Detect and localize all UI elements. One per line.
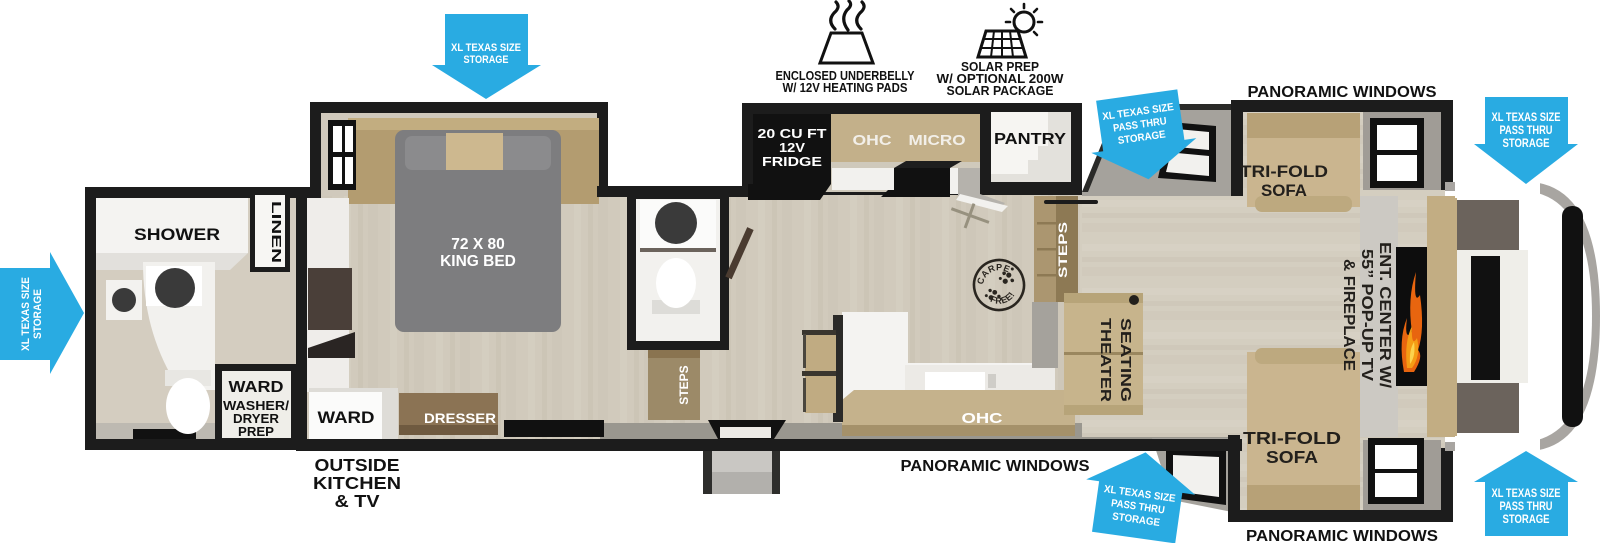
svg-text:DRYER: DRYER (233, 412, 279, 426)
svg-text:PANORAMIC WINDOWS: PANORAMIC WINDOWS (1248, 84, 1437, 101)
svg-text:KING BED: KING BED (440, 253, 516, 270)
svg-text:PANORAMIC WINDOWS: PANORAMIC WINDOWS (901, 458, 1090, 475)
svg-text:PASS THRU: PASS THRU (1500, 125, 1553, 137)
svg-text:SOFA: SOFA (1261, 181, 1307, 200)
svg-text:SEATING: SEATING (1117, 318, 1134, 402)
svg-text:STORAGE: STORAGE (464, 54, 509, 66)
svg-text:PASS THRU: PASS THRU (1500, 501, 1553, 513)
svg-text:OUTSIDE: OUTSIDE (315, 455, 400, 475)
svg-text:SOLAR PACKAGE: SOLAR PACKAGE (947, 83, 1054, 98)
svg-text:STORAGE: STORAGE (1503, 514, 1550, 526)
svg-text:FRIDGE: FRIDGE (762, 154, 822, 169)
svg-text:XL TEXAS SIZE: XL TEXAS SIZE (1492, 488, 1561, 500)
svg-text:& TV: & TV (335, 491, 380, 511)
svg-text:THEATER: THEATER (1097, 318, 1114, 402)
svg-text:STEPS: STEPS (1056, 222, 1070, 278)
svg-text:WARD: WARD (229, 379, 284, 396)
svg-text:XL TEXAS SIZE: XL TEXAS SIZE (451, 42, 521, 54)
svg-text:ENT. CENTER W/: ENT. CENTER W/ (1376, 242, 1393, 389)
svg-text:OHC: OHC (962, 410, 1003, 427)
svg-text:20 CU FT: 20 CU FT (758, 126, 827, 141)
svg-text:STEPS: STEPS (677, 365, 691, 404)
svg-text:SHOWER: SHOWER (134, 225, 220, 244)
svg-text:& FIREPLACE: & FIREPLACE (1340, 259, 1357, 371)
svg-text:STORAGE: STORAGE (1503, 138, 1550, 150)
svg-text:MICRO: MICRO (909, 132, 966, 149)
svg-text:XL TEXAS SIZE: XL TEXAS SIZE (1492, 112, 1561, 124)
svg-text:W/ 12V HEATING PADS: W/ 12V HEATING PADS (783, 80, 908, 95)
svg-text:DRESSER: DRESSER (424, 410, 496, 426)
svg-text:12V: 12V (779, 140, 805, 155)
svg-text:PANORAMIC WINDOWS: PANORAMIC WINDOWS (1246, 528, 1438, 543)
svg-text:OHC: OHC (853, 132, 892, 149)
svg-text:PREP: PREP (238, 425, 274, 439)
svg-text:TRI-FOLD: TRI-FOLD (1243, 428, 1341, 448)
svg-text:KITCHEN: KITCHEN (313, 473, 401, 493)
svg-text:STORAGE: STORAGE (32, 289, 44, 339)
svg-text:55” POP-UP TV: 55” POP-UP TV (1358, 249, 1375, 381)
svg-text:72 X 80: 72 X 80 (451, 236, 504, 253)
svg-text:XL TEXAS SIZE: XL TEXAS SIZE (20, 277, 32, 351)
svg-text:WARD: WARD (318, 408, 375, 427)
svg-text:WASHER/: WASHER/ (223, 399, 290, 413)
svg-text:LINEN: LINEN (269, 201, 284, 263)
svg-text:TRI-FOLD: TRI-FOLD (1240, 162, 1328, 181)
svg-text:SOFA: SOFA (1266, 447, 1318, 467)
svg-text:PANTRY: PANTRY (994, 131, 1067, 148)
